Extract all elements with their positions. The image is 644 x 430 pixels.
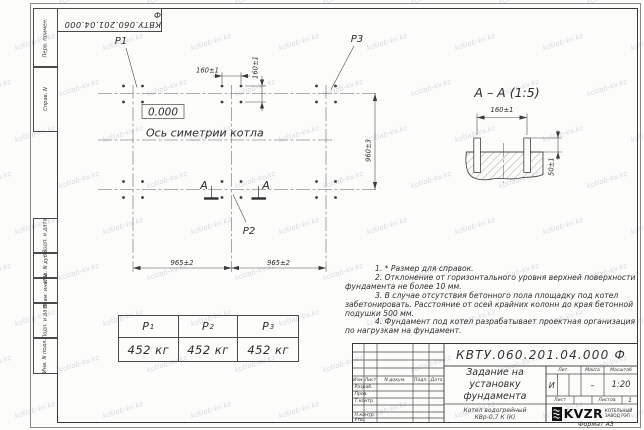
lit-header: Лит. [546,366,581,374]
titleblock-doc-number: КВТУ.060.201.04.000 Ф [444,344,638,366]
drawing-title-line: установку [469,379,520,391]
object-name-line: КВр-0,7 К (К) [475,414,516,421]
scale-header: Масштаб [604,366,638,374]
rev-header-list: Лист [364,376,377,384]
sheets-value: 1 [622,396,638,404]
load-label-p1: P1 [115,36,127,47]
plan-dim-160-horizontal: 160±1 [196,67,219,75]
row-label-prov: Пров. [353,391,379,398]
section-letter-left: А [199,179,208,192]
load-symbol: P [142,320,149,333]
load-value-p2: 452 кг [179,338,239,361]
lit-value: И [546,374,558,396]
object-name-line: Котел водогрейный [464,407,527,414]
load-table-header-p2: P2 [179,316,239,338]
sheet-header: Лист [546,396,574,404]
company-name: КОТЕЛЬНЫЙ ЗАВОД РЭП [605,409,632,419]
row-label-tkontr: Т.контр. [353,398,379,405]
load-subscript: 2 [210,323,214,331]
note-line: по нагрузкам на фундамент. [345,327,636,336]
drawing-sheet: kotlab-kv.kzkotlab-kv.kzkotlab-kv.kzkotl… [0,0,644,430]
load-value-p3: 452 кг [238,338,298,361]
axis-of-symmetry-label: Ось симетрии котла [146,127,264,140]
load-table-header-p1: P1 [119,316,179,338]
sheets-header: Листов [592,396,622,404]
format-label: Формат А3 [552,421,640,428]
mass-header: Масса [581,366,604,374]
drawing-title: Задание на установку фундамента [444,366,546,404]
drawing-title-line: фундамента [464,391,527,403]
section-dim-50: 50±1 [548,157,556,176]
scale-value: 1:20 [604,374,638,396]
drawing-title-line: Задание на [466,367,524,379]
object-name: Котел водогрейный КВр-0,7 К (К) [444,404,546,423]
load-table-header-p3: P3 [238,316,298,338]
load-table: P1 P2 P3 452 кг 452 кг 452 кг [118,315,299,362]
notes-block: 1. * Размер для справок. 2. Отклонение о… [345,265,636,336]
rev-header-izm: Изм. [353,376,364,384]
section-letter-right: А [261,179,270,192]
load-label-p2: P2 [243,226,255,237]
plan-dim-965-left: 965±2 [171,259,194,267]
elevation-value: 0.000 [148,107,178,119]
title-block: КВТУ.060.201.04.000 Ф Изм. Лист N докум.… [352,343,638,423]
load-subscript: 1 [150,323,154,331]
anchor-bolt-dots [122,85,337,199]
row-label-utv: Утв. [353,418,379,423]
rev-header-doc: N докум. [377,376,413,384]
plan-dim-960: 960±3 [365,139,373,162]
load-symbol: P [262,320,269,333]
plan-dim-160-vertical: 160±1 [252,56,260,79]
section-cut-marks [204,186,266,199]
company-logo-text: KVZR [564,406,603,421]
company-name-line: ЗАВОД РЭП [605,413,630,418]
load-label-p3: P3 [351,34,363,45]
plan-dim-965-right: 965±2 [267,259,290,267]
load-value-p1: 452 кг [119,338,179,361]
load-symbol: P [202,320,209,333]
load-subscript: 3 [270,323,274,331]
section-dim-160: 160±1 [491,106,514,114]
mass-value: – [581,374,604,396]
kvzr-logo-icon [552,407,562,421]
rev-header-sign: Подп. [413,376,429,384]
section-title: А – А (1:5) [473,85,539,100]
row-label-razrab: Разраб. [353,384,379,391]
rev-header-date: Дата [429,376,444,384]
